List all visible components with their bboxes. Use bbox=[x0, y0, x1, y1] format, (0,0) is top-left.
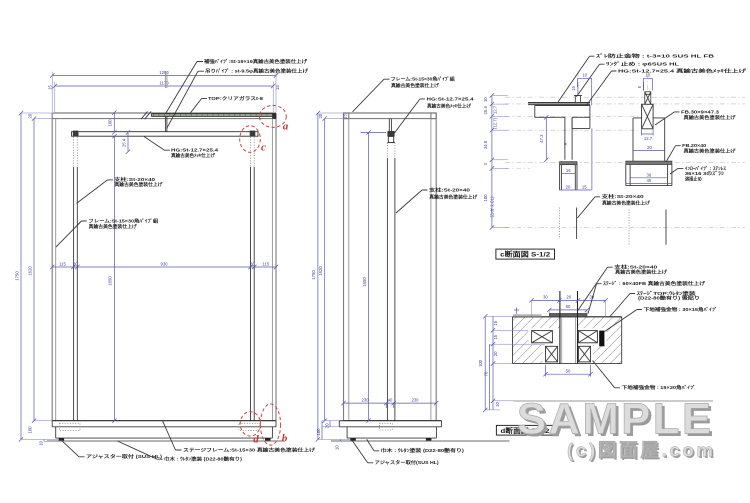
svg-text:1170: 1170 bbox=[159, 80, 169, 85]
svg-text:1620: 1620 bbox=[318, 266, 323, 276]
svg-text:20: 20 bbox=[318, 113, 323, 118]
svg-text:25.4: 25.4 bbox=[483, 106, 488, 115]
svg-text:100: 100 bbox=[483, 194, 488, 202]
svg-text:1650: 1650 bbox=[108, 276, 113, 286]
svg-text:真鍮古美色塗装仕上げ: 真鍮古美色塗装仕上げ bbox=[684, 147, 737, 154]
svg-text:36: 36 bbox=[647, 172, 652, 177]
svg-text:(ひかえCL): (ひかえCL) bbox=[489, 196, 496, 218]
svg-text:ｽﾞﾚ防止金物 : t-3×10 SUS HL FB: ｽﾞﾚ防止金物 : t-3×10 SUS HL FB bbox=[596, 53, 714, 60]
svg-text:20: 20 bbox=[647, 145, 652, 150]
svg-text:115: 115 bbox=[59, 261, 66, 266]
svg-text:20: 20 bbox=[493, 351, 498, 356]
svg-text:100: 100 bbox=[478, 359, 483, 367]
svg-text:30: 30 bbox=[543, 295, 548, 300]
svg-text:支柱:St-20×40: 支柱:St-20×40 bbox=[602, 193, 645, 200]
svg-text:ｽﾃｰｼﾞ : 60×40FB 真鍮古美色塗装仕上げ: ｽﾃｰｼﾞ : 60×40FB 真鍮古美色塗装仕上げ bbox=[603, 280, 706, 287]
svg-text:34.8: 34.8 bbox=[483, 140, 488, 149]
svg-text:FB.30×9×47.3: FB.30×9×47.3 bbox=[681, 109, 720, 114]
svg-text:15: 15 bbox=[493, 320, 498, 325]
svg-text:20: 20 bbox=[566, 184, 571, 189]
svg-text:1650: 1650 bbox=[362, 277, 367, 287]
svg-text:(12.7): (12.7) bbox=[493, 117, 498, 129]
svg-text:50: 50 bbox=[566, 369, 571, 374]
svg-text:真鍮古美色塗装仕上げ: 真鍮古美色塗装仕上げ bbox=[684, 114, 737, 121]
svg-text:TOP:クリアガラスt-8: TOP:クリアガラスt-8 bbox=[208, 95, 264, 102]
svg-text:真鍮古美色ﾒｯｷ仕上げ: 真鍮古美色ﾒｯｷ仕上げ bbox=[171, 152, 216, 159]
svg-text:1620: 1620 bbox=[27, 266, 32, 276]
svg-text:10: 10 bbox=[582, 73, 587, 78]
svg-text:真鍮古美色ﾒｯｷ仕上げ: 真鍮古美色ﾒｯｷ仕上げ bbox=[427, 102, 472, 109]
svg-text:12.7: 12.7 bbox=[644, 136, 653, 141]
svg-text:(c)図面屋.com: (c)図面屋.com bbox=[567, 439, 713, 460]
svg-text:230: 230 bbox=[361, 397, 369, 402]
svg-text:真鍮古美色塗装仕上げ: 真鍮古美色塗装仕上げ bbox=[615, 268, 668, 275]
svg-text:15: 15 bbox=[47, 85, 52, 90]
svg-text:a: a bbox=[283, 121, 289, 133]
svg-text:溶接止め: 溶接止め bbox=[685, 176, 703, 183]
svg-text:100: 100 bbox=[108, 119, 113, 127]
svg-text:15: 15 bbox=[275, 85, 280, 90]
svg-text:12.7: 12.7 bbox=[493, 105, 498, 114]
svg-text:c断面図 S-1/2: c断面図 S-1/2 bbox=[500, 250, 550, 259]
svg-text:20: 20 bbox=[324, 423, 329, 428]
svg-text:20: 20 bbox=[73, 261, 78, 266]
svg-text:20: 20 bbox=[250, 261, 255, 266]
svg-text:下地補強金物 : 30×15角ﾊﾟｲﾌﾟ: 下地補強金物 : 30×15角ﾊﾟｲﾌﾟ bbox=[644, 306, 718, 313]
svg-text:10: 10 bbox=[38, 441, 43, 446]
svg-text:16: 16 bbox=[566, 168, 571, 173]
svg-text:15: 15 bbox=[493, 334, 498, 339]
svg-text:115: 115 bbox=[262, 261, 269, 266]
svg-text:アジャスター取付(SUS HL): アジャスター取付(SUS HL) bbox=[375, 459, 440, 466]
svg-text:1750: 1750 bbox=[14, 271, 19, 281]
svg-text:15: 15 bbox=[571, 86, 576, 91]
svg-text:230: 230 bbox=[411, 397, 419, 402]
svg-text:真鍮古美色塗装仕上げ: 真鍮古美色塗装仕上げ bbox=[115, 181, 164, 188]
svg-text:HG:St-12.7×25.4 真鍮古美色ﾒｯｷ仕上げ: HG:St-12.7×25.4 真鍮古美色ﾒｯｷ仕上げ bbox=[618, 67, 747, 74]
svg-text:1200: 1200 bbox=[159, 70, 169, 75]
svg-text:10: 10 bbox=[483, 97, 488, 102]
svg-text:20: 20 bbox=[566, 295, 571, 300]
svg-text:15: 15 bbox=[582, 184, 587, 189]
svg-text:フレーム:St-15×30角ﾊﾟｲﾌﾟ組: フレーム:St-15×30角ﾊﾟｲﾌﾟ組 bbox=[391, 76, 456, 83]
svg-text:10: 10 bbox=[495, 402, 500, 407]
svg-text:HG:St-12.7×25.4: HG:St-12.7×25.4 bbox=[427, 96, 475, 101]
svg-text:ステージフレーム:St-15×30 真鍮古美色塗装仕上げ: ステージフレーム:St-15×30 真鍮古美色塗装仕上げ bbox=[183, 446, 316, 453]
svg-text:真鍮古美色塗装仕上げ: 真鍮古美色塗装仕上げ bbox=[89, 223, 138, 230]
svg-text:吊りﾊﾟｲﾌﾟ : st-9.5φ真鍮古美色塗装仕上げ: 吊りﾊﾟｲﾌﾟ : st-9.5φ真鍮古美色塗装仕上げ bbox=[205, 68, 309, 75]
svg-text:930: 930 bbox=[160, 261, 168, 266]
svg-text:FB.20×40: FB.20×40 bbox=[682, 143, 707, 148]
svg-text:70: 70 bbox=[483, 371, 488, 376]
svg-text:10: 10 bbox=[334, 445, 339, 450]
svg-text:真鍮古美色塗装仕上げ: 真鍮古美色塗装仕上げ bbox=[602, 200, 651, 207]
svg-text:40: 40 bbox=[388, 397, 393, 402]
svg-text:b: b bbox=[282, 433, 288, 445]
svg-text:100: 100 bbox=[316, 428, 321, 436]
svg-text:1750: 1750 bbox=[311, 270, 316, 280]
svg-text:下地補強金物 : 15×20角ﾊﾟｲﾌﾟ: 下地補強金物 : 15×20角ﾊﾟｲﾌﾟ bbox=[622, 384, 696, 391]
svg-text:補強ﾊﾟｲﾌﾟ:St-19×19真鍮古美色塗装仕上げ: 補強ﾊﾟｲﾌﾟ:St-19×19真鍮古美色塗装仕上げ bbox=[203, 58, 308, 65]
svg-text:100: 100 bbox=[27, 426, 32, 434]
svg-text:真鍮古美色塗装仕上げ: 真鍮古美色塗装仕上げ bbox=[429, 193, 478, 200]
svg-text:40: 40 bbox=[647, 178, 652, 183]
svg-text:支柱:St-20×40: 支柱:St-20×40 bbox=[429, 186, 471, 193]
svg-text:60: 60 bbox=[566, 304, 571, 309]
svg-text:15: 15 bbox=[342, 113, 347, 118]
svg-text:ﾘﾝｸﾞ止め : φ6SUS HL: ﾘﾝｸﾞ止め : φ6SUS HL bbox=[606, 61, 680, 68]
svg-text:(D22-80艶有り) 後貼り: (D22-80艶有り) 後貼り bbox=[638, 295, 700, 302]
svg-text:巾木 : ｳﾚﾀﾝ塗装 (D22-80艶有り): 巾木 : ｳﾚﾀﾝ塗装 (D22-80艶有り) bbox=[164, 456, 243, 463]
svg-text:20: 20 bbox=[27, 113, 32, 118]
svg-text:d: d bbox=[253, 434, 259, 446]
svg-text:25.4: 25.4 bbox=[121, 138, 126, 147]
svg-text:c: c bbox=[261, 142, 266, 154]
svg-text:47.3: 47.3 bbox=[539, 134, 544, 143]
svg-text:巾木 : ｳﾚﾀﾝ塗装 (D22-80艶有り): 巾木 : ｳﾚﾀﾝ塗装 (D22-80艶有り) bbox=[381, 447, 465, 454]
svg-text:真鍮古美色塗装仕上げ: 真鍮古美色塗装仕上げ bbox=[391, 82, 440, 89]
